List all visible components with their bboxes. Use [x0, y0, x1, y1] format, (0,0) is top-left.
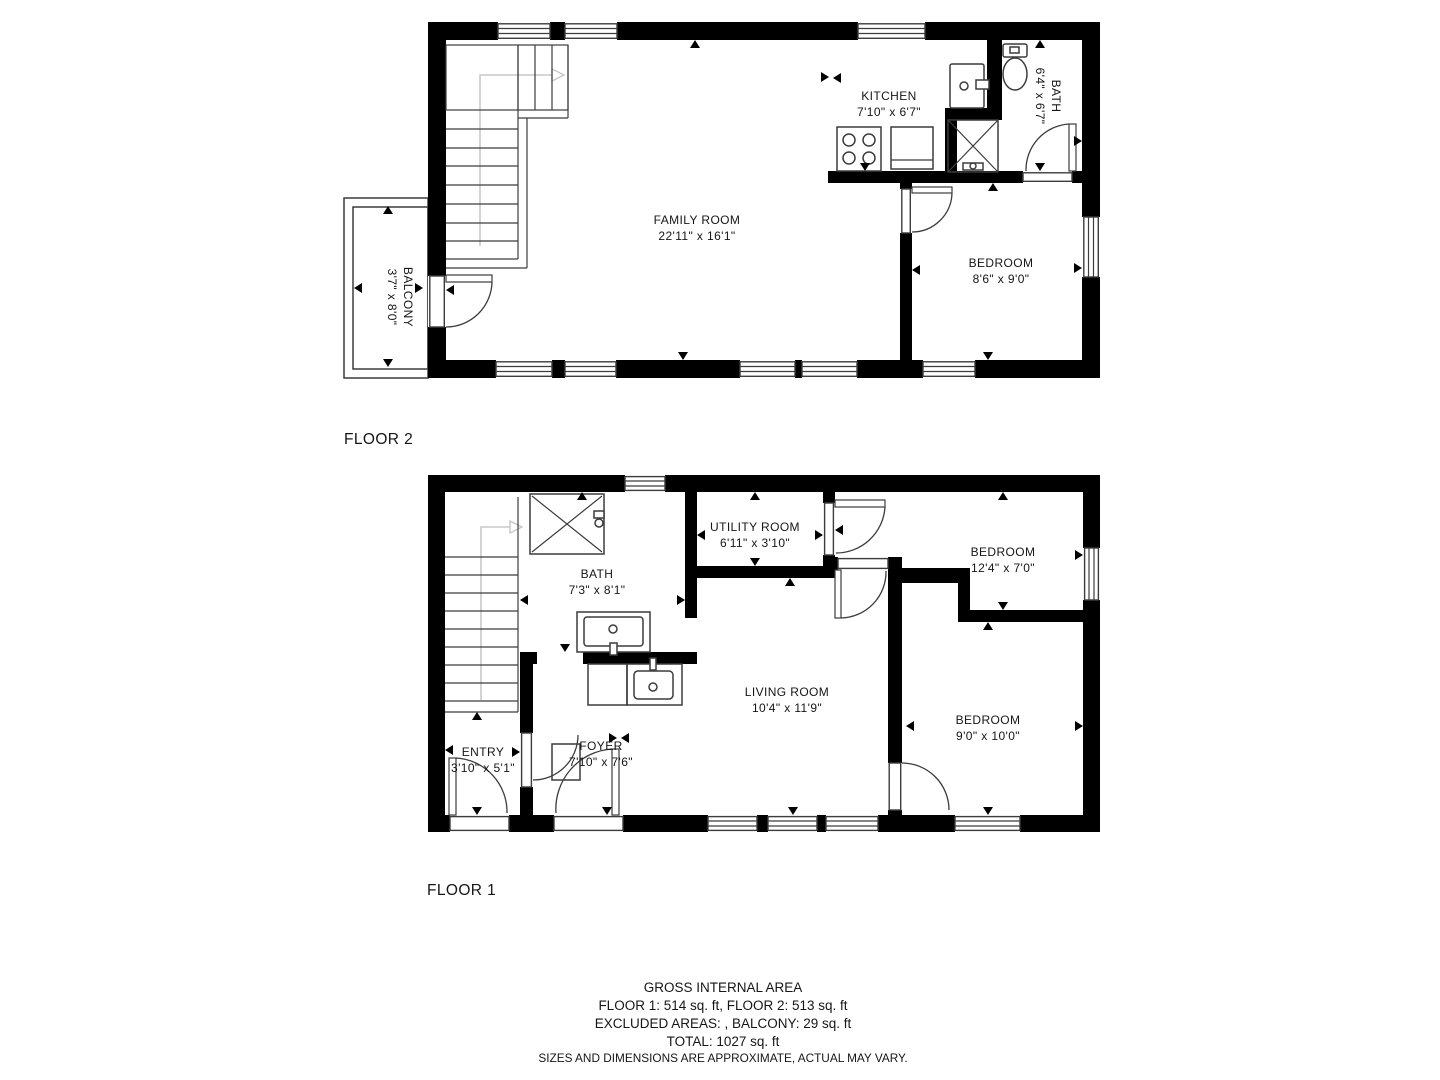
room-name: FOYER: [579, 739, 622, 753]
balcony-door: [430, 275, 492, 327]
window: [565, 362, 616, 377]
window: [498, 24, 550, 39]
shower: [530, 494, 604, 554]
floorplan-canvas: FAMILY ROOM 22'11" x 16'1" KITCHEN 7'10"…: [0, 0, 1440, 1080]
room-dims: 9'0" x 10'0": [956, 729, 1020, 743]
stove: [837, 127, 881, 171]
room-name: BALCONY: [401, 267, 415, 327]
window: [802, 362, 857, 377]
window: [625, 477, 665, 491]
room-name: ENTRY: [462, 745, 504, 759]
bedroom2-door: [889, 763, 949, 810]
room-name: BEDROOM: [969, 256, 1034, 270]
room-label-kitchen: KITCHEN 7'10" x 6'7": [857, 89, 921, 119]
window: [858, 24, 925, 39]
utility-door: [825, 500, 885, 555]
room-label-living-room: LIVING ROOM 10'4" x 11'9": [745, 685, 829, 715]
room-dims: 6'11" x 3'10": [720, 536, 790, 550]
room-dims: 12'4" x 7'0": [971, 561, 1035, 575]
bedroom1-door: [835, 559, 888, 618]
room-label-bedroom: BEDROOM 8'6" x 9'0": [969, 256, 1034, 286]
toilet: [1003, 44, 1027, 90]
room-label-entry: ENTRY 3'10" x 5'1": [451, 745, 515, 775]
room-label-bath: BATH 6'4" x 6'7": [1033, 68, 1063, 125]
room-label-family-room: FAMILY ROOM 22'11" x 16'1": [654, 213, 741, 243]
floor2-plan: FAMILY ROOM 22'11" x 16'1" KITCHEN 7'10"…: [344, 22, 1100, 448]
total-area-line: TOTAL: 1027 sq. ft: [667, 1034, 780, 1049]
bath-sink-vanity: [577, 612, 650, 655]
window: [923, 362, 975, 377]
room-name: BATH: [581, 567, 614, 581]
floor2-windows: [496, 24, 1098, 377]
room-dims: 7'3" x 8'1": [569, 583, 626, 597]
room-name: BEDROOM: [971, 545, 1036, 559]
floor2-label: FLOOR 2: [344, 431, 413, 448]
gross-internal-area-title: GROSS INTERNAL AREA: [644, 980, 803, 995]
area-summary: GROSS INTERNAL AREA FLOOR 1: 514 sq. ft,…: [538, 980, 907, 1065]
floor1-label: FLOOR 1: [427, 882, 496, 899]
kitchenette-counter: [588, 658, 682, 705]
kitchen-sink: [950, 64, 989, 108]
room-dims: 22'11" x 16'1": [658, 229, 735, 243]
floor2-room-labels: FAMILY ROOM 22'11" x 16'1" KITCHEN 7'10"…: [385, 68, 1063, 328]
room-label-utility-room: UTILITY ROOM 6'11" x 3'10": [710, 520, 800, 550]
window: [708, 817, 757, 831]
window: [740, 362, 795, 377]
room-name: FAMILY ROOM: [654, 213, 741, 227]
window: [768, 817, 817, 831]
room-dims: 7'10" x 7'6": [569, 755, 633, 769]
bedroom-door: [902, 187, 952, 233]
floor-areas-line: FLOOR 1: 514 sq. ft, FLOOR 2: 513 sq. ft: [598, 998, 847, 1013]
kitchen-counter: [891, 127, 933, 169]
room-label-bath: BATH 7'3" x 8'1": [569, 567, 626, 597]
floor1-room-labels: ENTRY 3'10" x 5'1" FOYER 7'10" x 7'6" BA…: [451, 520, 1035, 775]
room-dims: 7'10" x 6'7": [857, 105, 921, 119]
window: [826, 817, 878, 831]
window: [955, 817, 1020, 831]
room-label-bedroom1: BEDROOM 12'4" x 7'0": [971, 545, 1036, 575]
excluded-areas-line: EXCLUDED AREAS: , BALCONY: 29 sq. ft: [595, 1016, 852, 1031]
room-name: BEDROOM: [956, 713, 1021, 727]
room-dims: 6'4" x 6'7": [1033, 68, 1047, 125]
room-name: UTILITY ROOM: [710, 520, 800, 534]
room-label-bedroom2: BEDROOM 9'0" x 10'0": [956, 713, 1021, 743]
room-name: LIVING ROOM: [745, 685, 829, 699]
floorplan-page: FAMILY ROOM 22'11" x 16'1" KITCHEN 7'10"…: [0, 0, 1440, 1080]
floor2-stairs: [446, 45, 568, 268]
window: [1085, 548, 1099, 600]
floor1-plan: ENTRY 3'10" x 5'1" FOYER 7'10" x 7'6" BA…: [427, 475, 1100, 899]
bath-door: [1023, 124, 1076, 181]
room-dims: 3'10" x 5'1": [451, 761, 515, 775]
room-label-balcony: BALCONY 3'7" x 8'0": [385, 267, 415, 327]
floor1-stairs: [445, 497, 522, 712]
room-label-foyer: FOYER 7'10" x 7'6": [569, 739, 633, 769]
floor1-fixtures: [530, 494, 682, 705]
window: [1084, 217, 1099, 277]
window: [496, 362, 552, 377]
room-dims: 3'7" x 8'0": [385, 269, 399, 326]
room-name: KITCHEN: [861, 89, 916, 103]
room-name: BATH: [1049, 80, 1063, 113]
room-dims: 10'4" x 11'9": [752, 701, 822, 715]
disclaimer-line: SIZES AND DIMENSIONS ARE APPROXIMATE, AC…: [538, 1051, 907, 1065]
window: [565, 24, 617, 39]
room-dims: 8'6" x 9'0": [973, 272, 1030, 286]
